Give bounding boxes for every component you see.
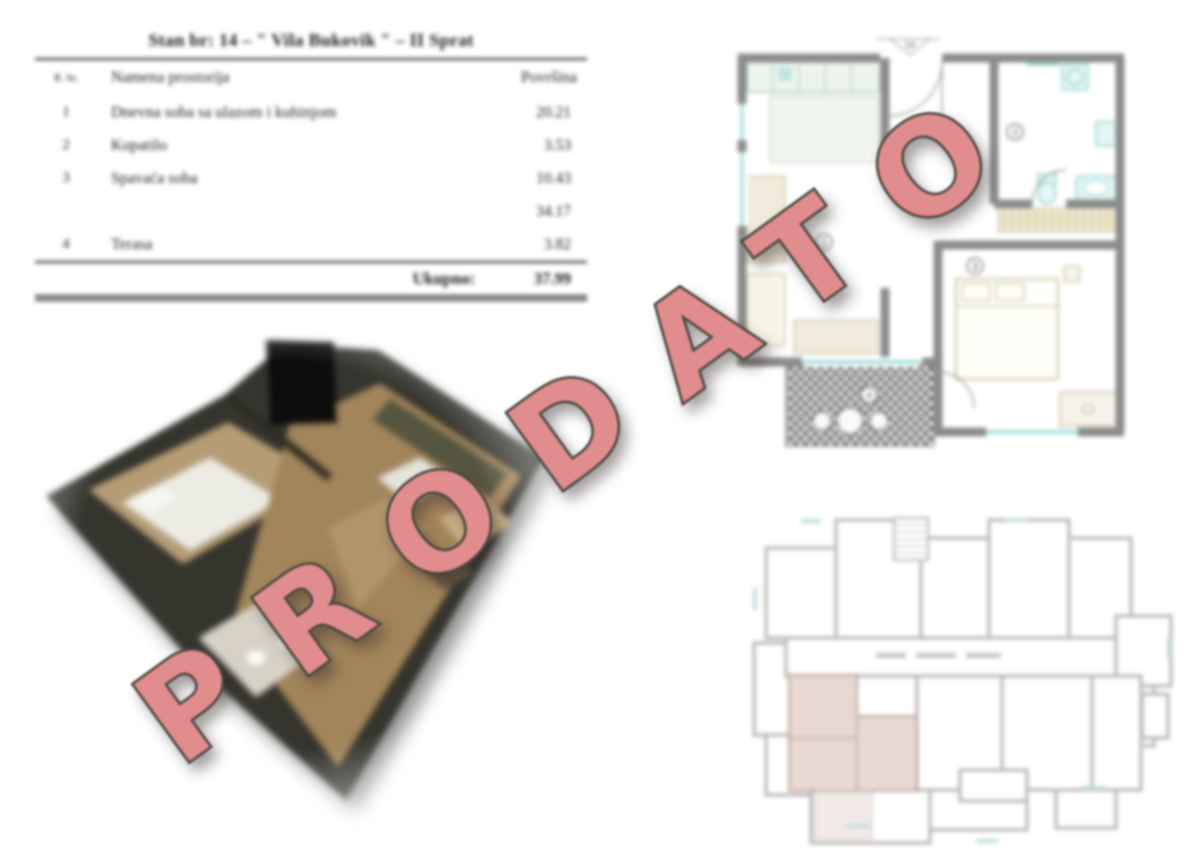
row-room-name: Spavaća soba [97, 170, 475, 188]
depth-fade [28, 328, 573, 833]
row-area-value: 10.43 [475, 170, 587, 188]
table-header-row: R. br. Namena prostorija Površina [35, 60, 587, 96]
svg-text:3: 3 [972, 262, 978, 273]
page-title: Stan br: 14 – " Vila Bukovik " – II Spra… [35, 24, 587, 60]
bed [956, 279, 1058, 379]
table-row: 2 Kupatilo 3.53 [35, 129, 587, 162]
terrace [786, 364, 934, 446]
table-total-row: Ukupno: 37.99 [35, 261, 587, 301]
stairs [894, 518, 928, 560]
row-ordinal: 4 [35, 236, 97, 253]
highlighted-unit [789, 675, 917, 791]
row-area-value: 34.17 [475, 203, 587, 221]
highlighted-unit-terrace [814, 791, 872, 839]
header-area: Površina [475, 69, 587, 87]
terrace-chair [870, 412, 888, 430]
render-3d [28, 328, 573, 833]
terrace-table [837, 408, 863, 434]
svg-text:2: 2 [1012, 128, 1018, 139]
row-ordinal: 2 [35, 137, 97, 154]
listing-sheet: Stan br: 14 – " Vila Bukovik " – II Spra… [0, 0, 1200, 848]
area-table: Stan br: 14 – " Vila Bukovik " – II Spra… [35, 24, 587, 301]
row-room-name: Terasa [97, 236, 475, 254]
living-furniture [747, 176, 878, 354]
header-ordinal: R. br. [35, 72, 97, 84]
row-area-value: 3.53 [475, 137, 587, 155]
table-row-subtotal: 34.17 [35, 195, 587, 228]
table-row: 3 Spavaća soba 10.43 [35, 162, 587, 195]
row-area-value: 3.82 [475, 236, 587, 254]
washing-machine [1062, 64, 1088, 90]
kitchen-counter [998, 208, 1118, 232]
svg-text:4: 4 [866, 391, 872, 402]
table-row: 1 Dnevna soba sa ulazom i kuhinjom 20.21 [35, 96, 587, 129]
kitchen-cabinets [747, 62, 880, 92]
bedroom-furniture [956, 266, 1116, 426]
corridor-text [876, 653, 1001, 658]
row-room-name: Kupatilo [97, 137, 475, 155]
row-area-value: 20.21 [475, 104, 587, 122]
unit-flag-label: 14 [905, 40, 915, 50]
total-value: 37.99 [475, 269, 587, 289]
dresser [1060, 392, 1116, 426]
row-ordinal: 1 [35, 104, 97, 121]
entrance-door-arc [888, 62, 942, 116]
svg-text:1: 1 [821, 238, 827, 249]
table-row: 4 Terasa 3.82 [35, 228, 587, 261]
nightstand [1064, 266, 1080, 282]
total-label: Ukupno: [97, 269, 475, 289]
key-plan [726, 498, 1196, 848]
floor-plan-2d: 14 [728, 36, 1140, 460]
header-room-name: Namena prostorija [97, 69, 475, 87]
terrace-chair [813, 412, 831, 430]
row-ordinal: 3 [35, 170, 97, 187]
kitchen-island [770, 96, 878, 162]
unit-flag: 14 [876, 39, 940, 55]
shower [1096, 122, 1117, 146]
row-room-name: Dnevna soba sa ulazom i kuhinjom [97, 104, 475, 122]
